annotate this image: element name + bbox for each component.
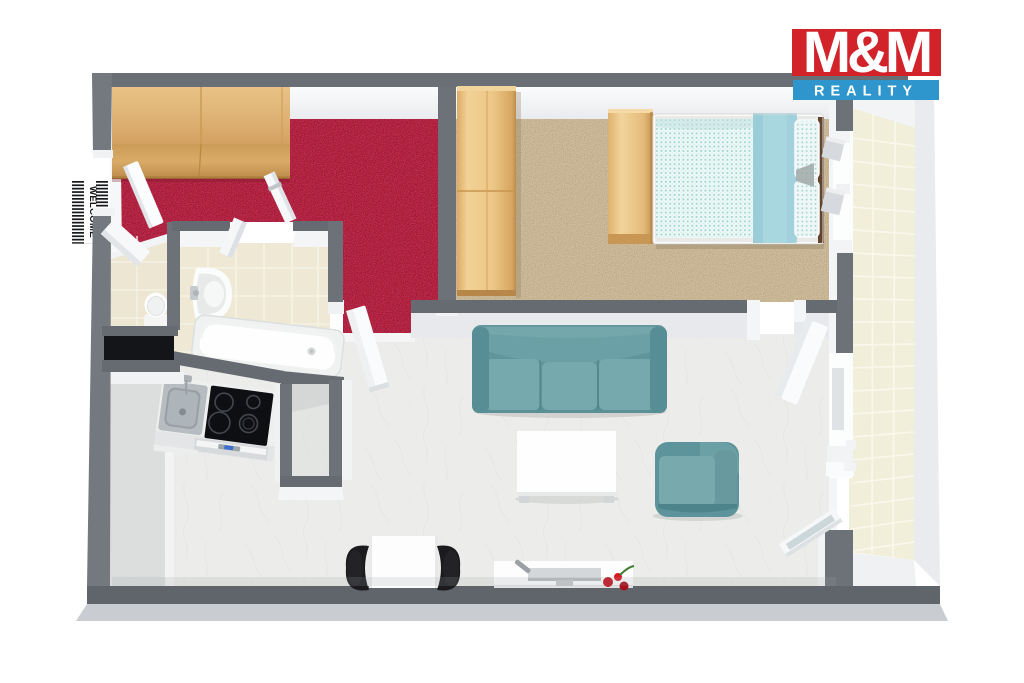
svg-text:REALITY: REALITY: [814, 84, 918, 100]
svg-text:M&M: M&M: [803, 20, 930, 85]
